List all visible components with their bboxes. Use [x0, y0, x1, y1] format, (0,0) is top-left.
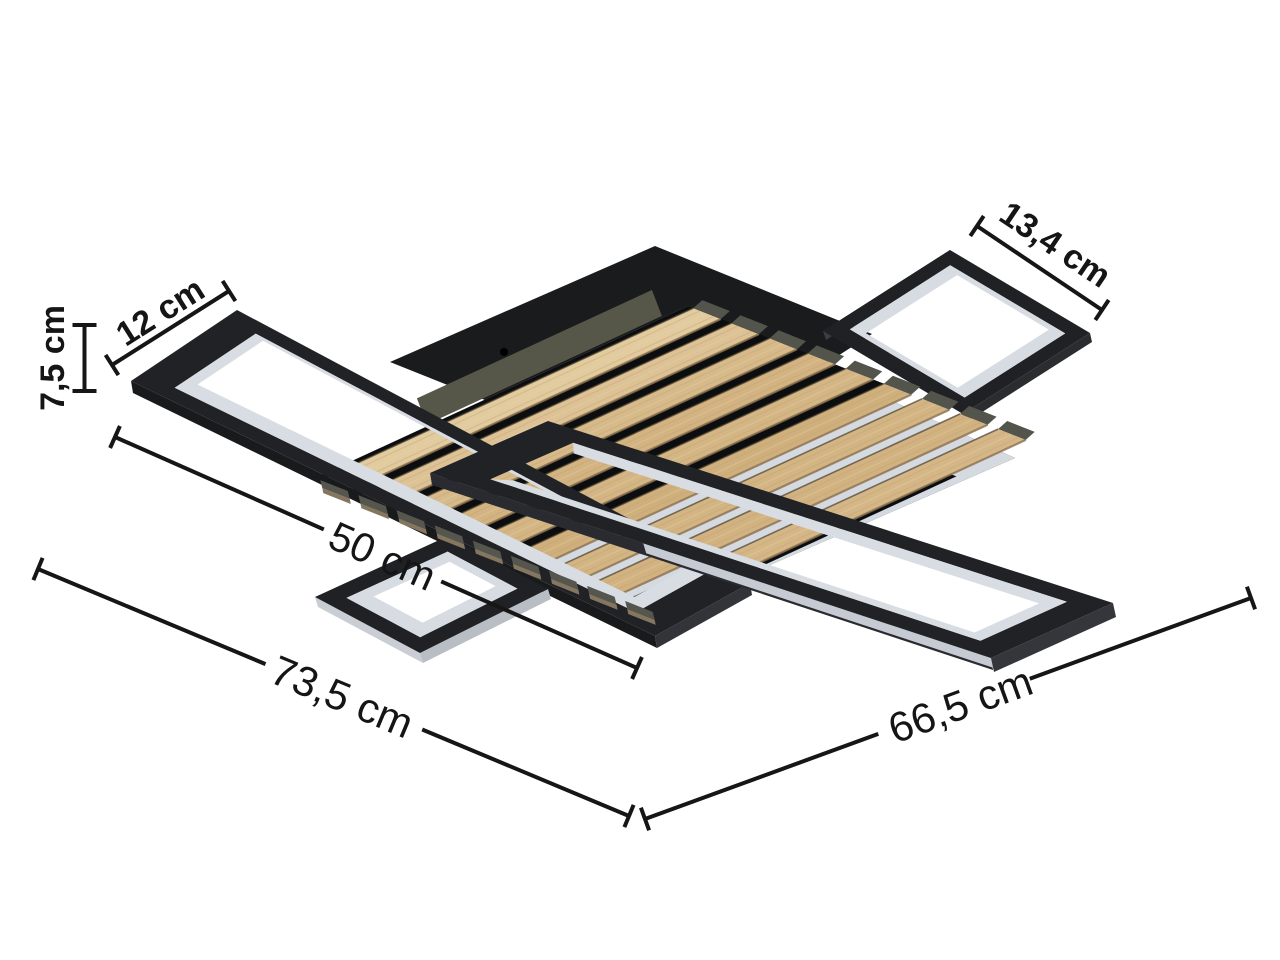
svg-text:7,5 cm: 7,5 cm — [34, 305, 72, 411]
